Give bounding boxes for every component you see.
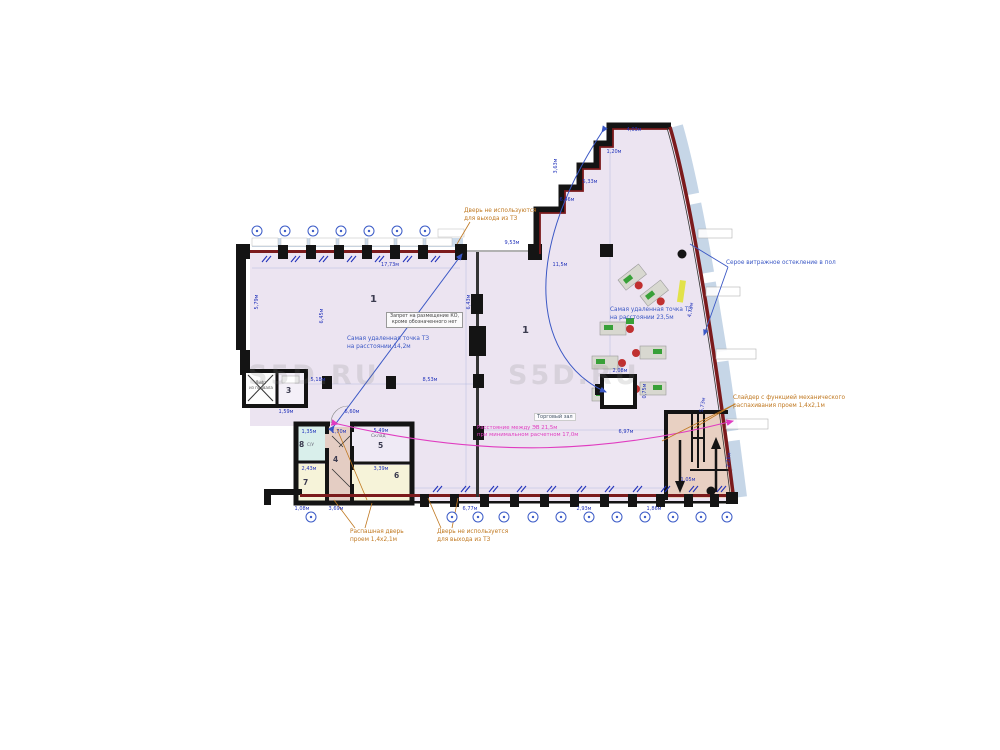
axis-marker <box>640 512 651 523</box>
dimension-label: 2,28м <box>725 452 732 467</box>
hall-name-tag: Торговый зал <box>534 413 576 421</box>
axis-marker <box>306 512 317 523</box>
axis-marker <box>308 226 319 237</box>
dimension-label: 8,53м <box>423 377 438 383</box>
dimension-label: 3,69м <box>329 506 344 512</box>
dimension-label: 11,5м <box>553 262 568 268</box>
dimension-label: 5,49м <box>374 428 389 434</box>
dimension-label: 2,43м <box>302 466 317 472</box>
dimension-label: 1,08м <box>295 506 310 512</box>
dimension-label: 17,73м <box>381 262 399 268</box>
dimension-label: 4,73м <box>687 302 695 318</box>
axis-marker <box>696 512 707 523</box>
axis-marker <box>556 512 567 523</box>
dimension-label: 6,60м <box>345 409 360 415</box>
axis-marker <box>499 512 510 523</box>
dimension-label: 2,08м <box>613 368 628 374</box>
annotation-distance-ev: Расстояние между ЭВ 21,5м при минимально… <box>477 425 578 440</box>
room-label-4: 4 <box>333 455 338 464</box>
axis-marker <box>392 226 403 237</box>
room-label-3: 3 <box>286 386 291 395</box>
axis-marker <box>722 512 733 523</box>
dimension-label: 0,75м <box>642 384 648 399</box>
axis-marker <box>612 512 623 523</box>
annotation-swing-door: Распашная дверь проем 1,4х2,1м <box>350 529 404 545</box>
annotation-door-bottom: Дверь не используется для выхода из ТЗ <box>437 529 508 545</box>
room-name-sklad: Склад <box>371 434 386 439</box>
axis-marker <box>336 226 347 237</box>
dimension-label: 1,05м <box>681 477 696 483</box>
dimension-label: 3,39м <box>374 466 389 472</box>
axis-marker <box>528 512 539 523</box>
annotation-slider: Слайдер с функцией механического распахи… <box>733 395 845 411</box>
room-label-8: 8 <box>299 440 304 449</box>
dimension-label: 4,03м <box>627 127 642 133</box>
dimension-label: 3,63м <box>553 159 559 174</box>
text-overlay: S5D.RU S5D.RU Дверь не используются для … <box>0 0 1000 750</box>
dimension-label: 6,46м <box>560 197 575 203</box>
axis-marker <box>584 512 595 523</box>
dimension-label: 1,59м <box>279 409 294 415</box>
annotation-far-point-right: Самая удаленная точка ТЗ на расстоянии 2… <box>610 307 692 323</box>
axis-marker <box>252 226 263 237</box>
annotation-far-point-left: Самая удаленная точка ТЗ на расстоянии 1… <box>347 336 429 352</box>
axis-marker <box>447 512 458 523</box>
axis-marker <box>668 512 679 523</box>
dimension-label: 1,70м <box>332 429 347 435</box>
axis-marker <box>364 226 375 237</box>
dimension-label: 5,79м <box>254 295 260 310</box>
axis-marker <box>473 512 484 523</box>
room-label-1-left: 1 <box>370 294 377 305</box>
room-name-su: С/У <box>307 442 314 447</box>
room-label-1-right: 1 <box>522 325 529 336</box>
dimension-label: 6,97м <box>619 429 634 435</box>
floor-plan-canvas: S5D.RU S5D.RU Дверь не используются для … <box>0 0 1000 750</box>
lift-label: Лифт из подвала <box>247 381 275 391</box>
room-label-5: 5 <box>378 441 383 450</box>
dimension-label: 6,45м <box>319 309 325 324</box>
annotation-door-top: Дверь не используются для выхода из ТЗ <box>464 208 537 224</box>
annotation-glazing: Серое витражное остекление в пол <box>726 260 836 268</box>
dimension-label: 9,53м <box>505 240 520 246</box>
dimension-label: 5,73м <box>699 397 707 413</box>
axis-marker <box>280 226 291 237</box>
room-label-7: 7 <box>303 478 308 487</box>
dimension-label: 5,18м <box>311 377 326 383</box>
axis-marker <box>420 226 431 237</box>
dimension-label: 1,20м <box>607 149 622 155</box>
room-label-6: 6 <box>394 471 399 480</box>
dimension-label: 1,35м <box>302 429 317 435</box>
dimension-label: 1,86м <box>647 506 662 512</box>
annotation-ban-box: Запрет на размещение КО, кроме обозначен… <box>386 312 463 328</box>
dimension-label: 6,43м <box>466 295 472 310</box>
watermark: S5D.RU <box>508 360 640 391</box>
dimension-label: 5,33м <box>583 179 598 185</box>
